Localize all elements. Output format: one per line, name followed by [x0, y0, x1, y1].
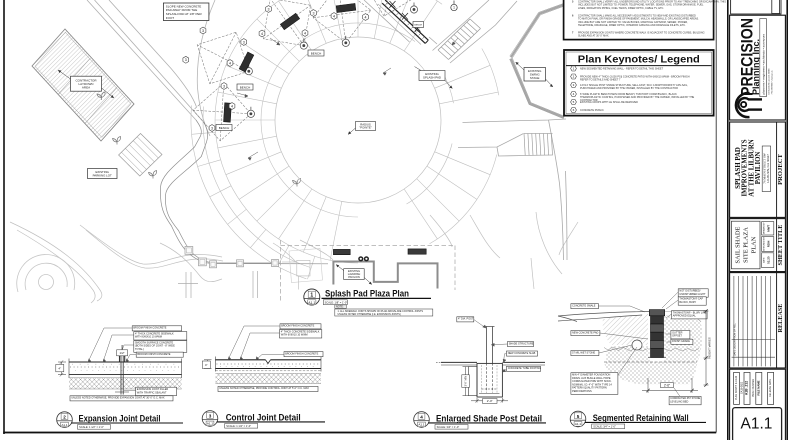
svg-text:SHEET TITLE: SHEET TITLE [777, 225, 784, 266]
svg-text:A1.1: A1.1 [418, 423, 425, 427]
svg-text:4" DIA. POST: 4" DIA. POST [458, 318, 474, 321]
svg-text:PURCHASED AND PROVIDED BY THE: PURCHASED AND PROVIDED BY THE OWNER, INS… [580, 87, 678, 90]
svg-text:SLABS AND AT 30'-0" MAX.: SLABS AND AT 30'-0" MAX. [578, 35, 610, 38]
svg-text:WITH 6X6X10 10 WWM: WITH 6X6X10 10 WWM [281, 334, 308, 337]
svg-text:TOTAL): TOTAL) [135, 348, 144, 351]
svg-text:3: 3 [223, 84, 225, 88]
svg-text:3: 3 [202, 29, 204, 33]
svg-text:BENCH: BENCH [240, 85, 251, 89]
svg-text:FOOT: FOOT [166, 16, 174, 20]
svg-text:4: 4 [365, 15, 367, 19]
svg-text:SCALE: 1 1/2" = 1'-0": SCALE: 1 1/2" = 1'-0" [226, 424, 251, 428]
svg-text:2: 2 [63, 414, 66, 419]
svg-text:4: 4 [231, 104, 233, 108]
svg-text:4: 4 [261, 32, 263, 36]
svg-text:PLAN: PLAN [751, 236, 758, 253]
svg-text:CHECKED BY: CHECKED BY [764, 236, 766, 251]
svg-text:PARKING LOT: PARKING LOT [93, 173, 112, 177]
svg-text:SCALE: 3/4" = 1'-0": SCALE: 3/4" = 1'-0" [593, 424, 616, 428]
svg-text:PAVILION: PAVILION [755, 152, 762, 185]
svg-text:SAIL SHADE: SAIL SHADE [735, 226, 742, 263]
svg-text:NEW SEGMENTED RETAINING WALL: NEW SEGMENTED RETAINING WALL - REFER TO … [580, 67, 664, 70]
svg-text:3: 3 [268, 7, 270, 11]
svg-text:3: 3 [243, 40, 245, 44]
svg-text:3'-0" MIN: 3'-0" MIN [464, 376, 468, 387]
svg-text:DATE DESCRIPTION OF REL.: DATE DESCRIPTION OF REL. [733, 323, 736, 356]
svg-text:FINISH GRADE: FINISH GRADE [672, 340, 690, 343]
svg-text:RELEASE DATE: RELEASE DATE [769, 379, 772, 397]
svg-text:Control Joint Detail: Control Joint Detail [226, 413, 301, 423]
svg-text:MWT: MWT [767, 225, 771, 232]
svg-text:REFER TO DETAILS AND SHEET 7: REFER TO DETAILS AND SHEET 7 [580, 78, 621, 81]
svg-text:4: 4 [304, 31, 306, 35]
svg-text:APPROVED EQUAL: APPROVED EQUAL [673, 315, 697, 318]
svg-text:NEW CONCRETE SLAB: NEW CONCRETE SLAB [508, 352, 536, 355]
svg-text:A1.1: A1.1 [61, 423, 68, 427]
svg-text:SCALE: 1/8" = 1'-0": SCALE: 1/8" = 1'-0" [325, 300, 348, 304]
svg-text:LEVELING BED: LEVELING BED [670, 401, 688, 404]
svg-text:AREA: AREA [82, 86, 90, 90]
svg-text:1: 1 [310, 292, 313, 298]
svg-text:EXISTING CROPS WITH LE SHALL B: EXISTING CROPS WITH LE SHALL BE REMOVED [580, 101, 638, 104]
svg-text:BROOM FINISH CONCRETE: BROOM FINISH CONCRETE [285, 352, 318, 355]
svg-text:Splash Pad Plaza Plan: Splash Pad Plaza Plan [325, 289, 409, 299]
svg-text:3: 3 [185, 58, 187, 62]
svg-text:BROOM FINISH CONCRETE: BROOM FINISH CONCRETE [133, 327, 166, 330]
svg-text:2'-0": 2'-0" [487, 399, 493, 403]
svg-text:UNDISTURBED LIGHT: UNDISTURBED LIGHT [679, 293, 706, 296]
svg-text:4": 4" [58, 367, 61, 371]
svg-text:TELEPHONE, DRAINAGE, FIBER OPT: TELEPHONE, DRAINAGE, FIBER OPTIC, INTERI… [578, 24, 686, 27]
svg-text:CONCRETE TUBE FOOTING: CONCRETE TUBE FOOTING [508, 367, 541, 370]
svg-text:2'-6": 2'-6" [664, 383, 670, 387]
svg-text:RDH: RDH [767, 241, 771, 248]
svg-text:3: 3 [313, 11, 315, 15]
svg-text:LINES, IRRIGATION PIPING, FUEL: LINES, IRRIGATION PIPING, FUEL TANKS, FI… [578, 7, 664, 10]
svg-text:57 MIL WET STONE: 57 MIL WET STONE [572, 351, 595, 354]
svg-text:FILE NAME: FILE NAME [756, 380, 760, 395]
svg-text:SCALE: 3/4" = 1'-0": SCALE: 3/4" = 1'-0" [437, 425, 460, 429]
svg-text:PLAN NORTH 0-10-20: PLAN NORTH 0-10-20 [735, 375, 738, 400]
svg-text:BLOCK, BURY: BLOCK, BURY [679, 301, 696, 304]
svg-text:BROOM FINISH CONCRETE: BROOM FINISH CONCRETE [137, 353, 170, 356]
svg-text:A1.1: A1.1 [207, 422, 214, 426]
svg-text:NEW CONCRETE PAD: NEW CONCRETE PAD [572, 331, 598, 334]
svg-text:4: 4 [333, 14, 335, 18]
svg-text:"POINTE": "POINTE" [359, 126, 371, 130]
svg-text:CONCRETE PUBLIC: CONCRETE PUBLIC [580, 109, 604, 112]
svg-text:HEIGHT VARIES: HEIGHT VARIES [708, 337, 712, 358]
svg-text:SCALE: 1 1/2" = 1'-0": SCALE: 1 1/2" = 1'-0" [79, 425, 104, 429]
svg-text:WITH 6X6X10 10 WWM: WITH 6X6X10 10 WWM [135, 336, 162, 339]
svg-text:02.20: 02.20 [767, 256, 771, 264]
svg-text:4: 4 [229, 61, 231, 65]
svg-text:DATE: DATE [763, 257, 766, 263]
svg-text:UNLESS NOTED OTHERWISE, PROVID: UNLESS NOTED OTHERWISE, PROVIDE EXPANSIO… [71, 397, 165, 400]
svg-text:BENCH: BENCH [414, 25, 422, 27]
svg-text:SPLASH PAD: SPLASH PAD [423, 75, 441, 79]
svg-text:planners • engineers • archite: planners • engineers • architects • surv… [761, 34, 765, 95]
svg-text:A1.1: A1.1 [575, 422, 582, 426]
svg-text:CONCRETE SWALE: CONCRETE SWALE [572, 304, 596, 307]
svg-text:SHADE STRUCTURE: SHADE STRUCTURE [509, 342, 534, 345]
svg-text:GA18-0622: GA18-0622 [741, 381, 744, 394]
svg-text:NOTE:: NOTE: [336, 306, 344, 309]
svg-text:3: 3 [209, 413, 212, 418]
svg-text:DRAWN BY: DRAWN BY [763, 222, 766, 234]
svg-text:UNLESS NOTED OTHERWISE (I.E. E: UNLESS NOTED OTHERWISE (I.E. EXPANSION J… [338, 313, 401, 316]
svg-text:BENCH: BENCH [219, 126, 230, 130]
svg-text:A1.1: A1.1 [741, 416, 773, 433]
svg-text:770.338.8000 • www.ppi.us: 770.338.8000 • www.ppi.us [772, 71, 774, 95]
svg-text:PERFORATIONS: PERFORATIONS [572, 390, 592, 393]
svg-text:PAVILION: PAVILION [348, 275, 360, 279]
svg-text:BROOM FINISH CONCRETE: BROOM FINISH CONCRETE [281, 325, 314, 328]
svg-text:4: 4 [420, 414, 423, 419]
svg-text:4": 4" [205, 363, 208, 367]
svg-text:BENCH: BENCH [311, 51, 322, 55]
svg-text:PROJ. NUMBER: PROJ. NUMBER [752, 379, 755, 397]
svg-text:Expansion Joint Detail: Expansion Joint Detail [79, 414, 161, 424]
svg-text:A1B .212: A1B .212 [745, 381, 749, 395]
svg-text:UNLESS NOTED OTHERWISE, PROVID: UNLESS NOTED OTHERWISE, PROVIDE CONTROL … [219, 387, 309, 390]
svg-text:STAGE: STAGE [530, 76, 540, 80]
svg-text:4355 Shackleford Rd, Lawrencev: 4355 Shackleford Rd, Lawrenceville, GA 3… [767, 68, 770, 94]
svg-text:RELEASE: RELEASE [777, 304, 784, 333]
svg-text:PROJECT: PROJECT [777, 154, 784, 185]
svg-text:OFFSET: OFFSET [672, 335, 682, 338]
svg-text:Segmented Retaining Wall: Segmented Retaining Wall [593, 413, 689, 423]
svg-text:Planning Inc.: Planning Inc. [751, 39, 761, 95]
svg-text:SITE PLAZA: SITE PLAZA [743, 227, 750, 263]
svg-text:1/2": 1/2" [119, 351, 124, 355]
svg-text:1: 1 [453, 6, 455, 10]
svg-text:Enlarged Shade Post Detail: Enlarged Shade Post Detail [436, 414, 542, 424]
svg-text:5: 5 [577, 414, 580, 419]
svg-text:A1.1: A1.1 [308, 301, 315, 305]
svg-text:Plan Keynotes/ Legend: Plan Keynotes/ Legend [578, 55, 700, 66]
svg-text:WITH TRAFFIC SEALANT: WITH TRAFFIC SEALANT [137, 391, 167, 394]
svg-text:3: 3 [211, 126, 213, 130]
